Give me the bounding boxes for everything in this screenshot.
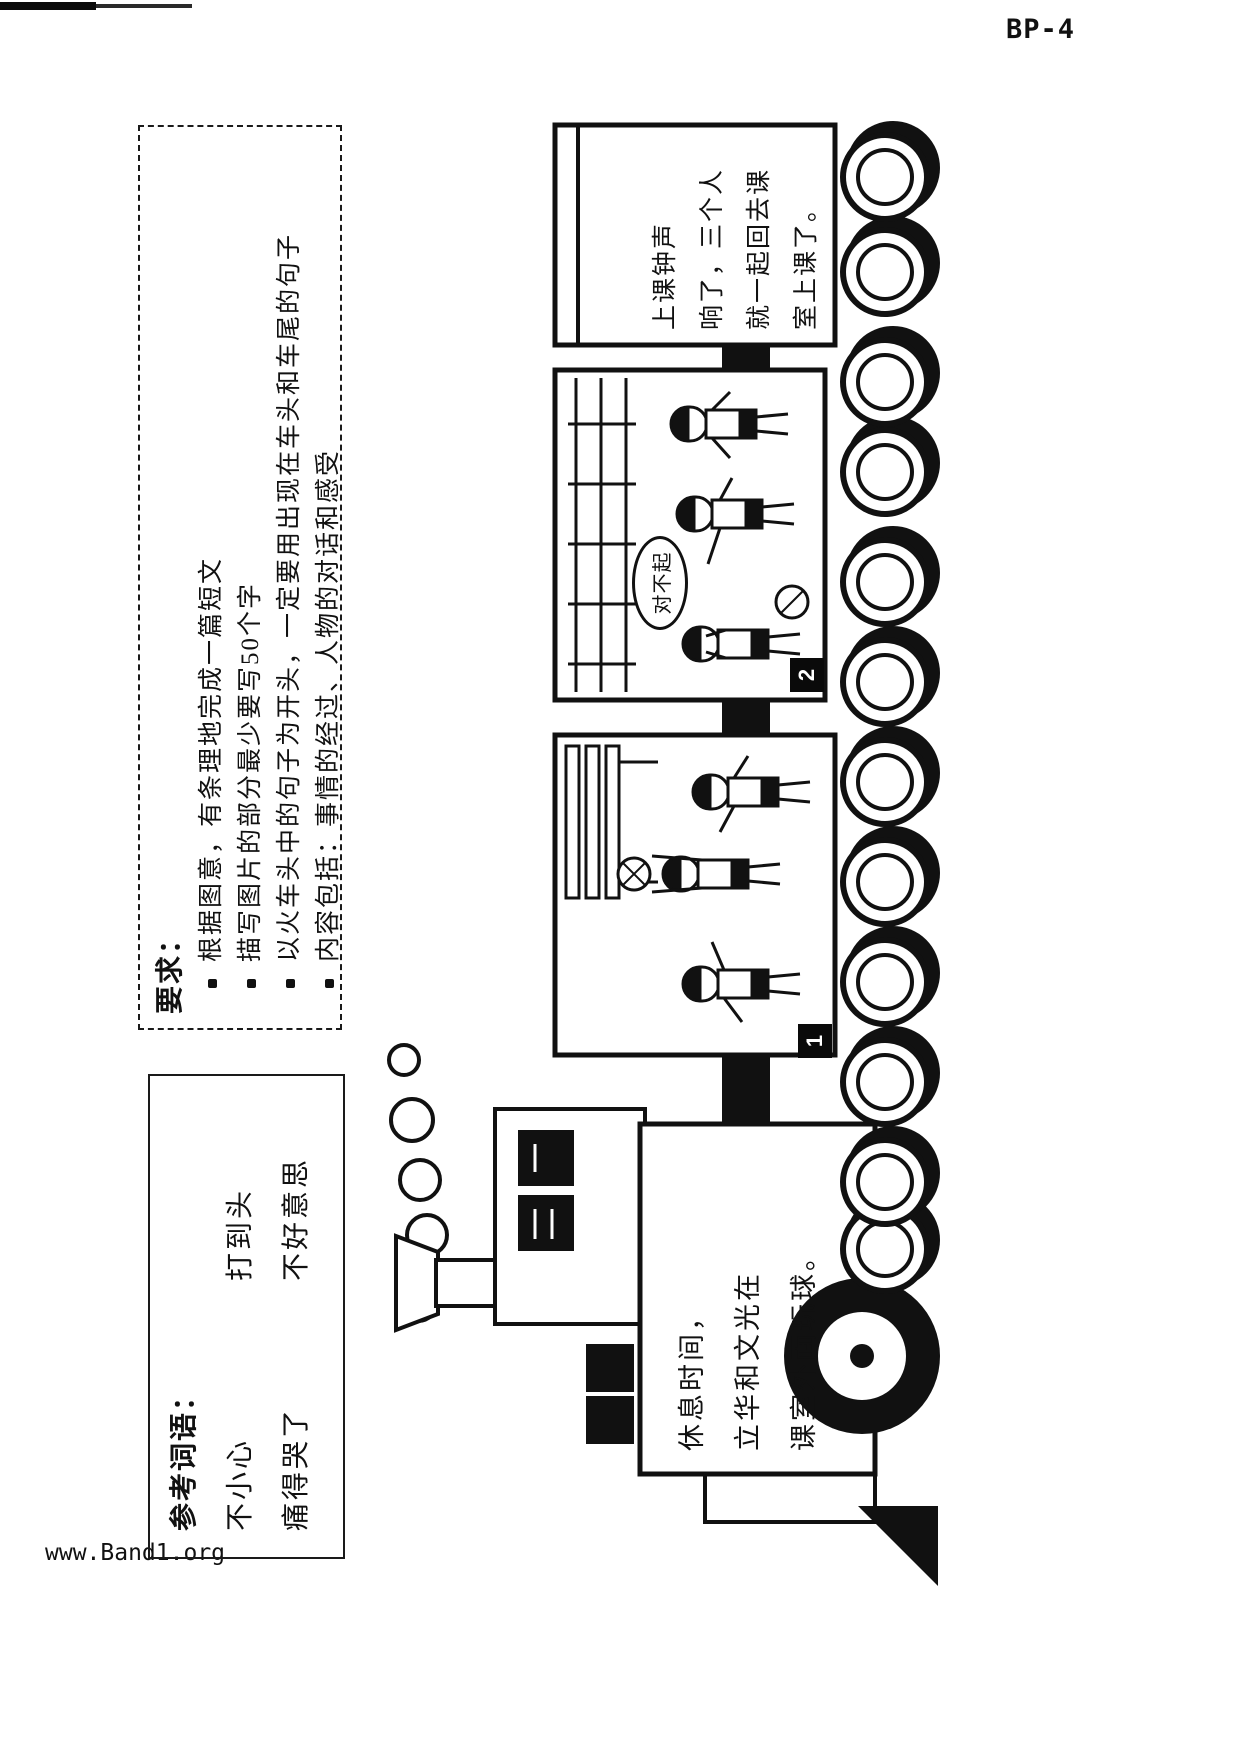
speech-bubble: 对不起 [632, 536, 688, 630]
sentence-line: 立华和文光在 [720, 1151, 776, 1451]
sentence-line: 课室外面玩球。 [776, 1151, 832, 1451]
train-illustration [0, 0, 1239, 1754]
picture-2-number: 2 [790, 658, 824, 692]
sentence-line: 室上课了。 [783, 135, 830, 330]
caboose-sentence: 上课钟声 响了，三个人 就一起回去课 室上课了。 [642, 135, 830, 330]
picture-1-number: 1 [798, 1024, 832, 1058]
scanned-worksheet-page: BP-4 www.Band1.org 参考词语： 不小心 打到头 痛得哭了 不好… [0, 0, 1239, 1754]
sentence-line: 响了，三个人 [689, 135, 736, 330]
locomotive-upper-structure [495, 1109, 645, 1442]
locomotive-nose [705, 1472, 875, 1522]
rotated-worksheet: 参考词语： 不小心 打到头 痛得哭了 不好意思 要求： 根据图意，有条理地完成一… [0, 0, 1239, 1754]
locomotive-chimney [396, 1236, 500, 1330]
sentence-line: 休息时间， [664, 1151, 720, 1451]
locomotive-sentence: 休息时间， 立华和文光在 课室外面玩球。 [664, 1151, 832, 1451]
sentence-line: 就一起回去课 [736, 135, 783, 330]
train-wheels [843, 121, 940, 1291]
cowcatcher [858, 1506, 938, 1586]
sentence-line: 上课钟声 [642, 135, 689, 330]
